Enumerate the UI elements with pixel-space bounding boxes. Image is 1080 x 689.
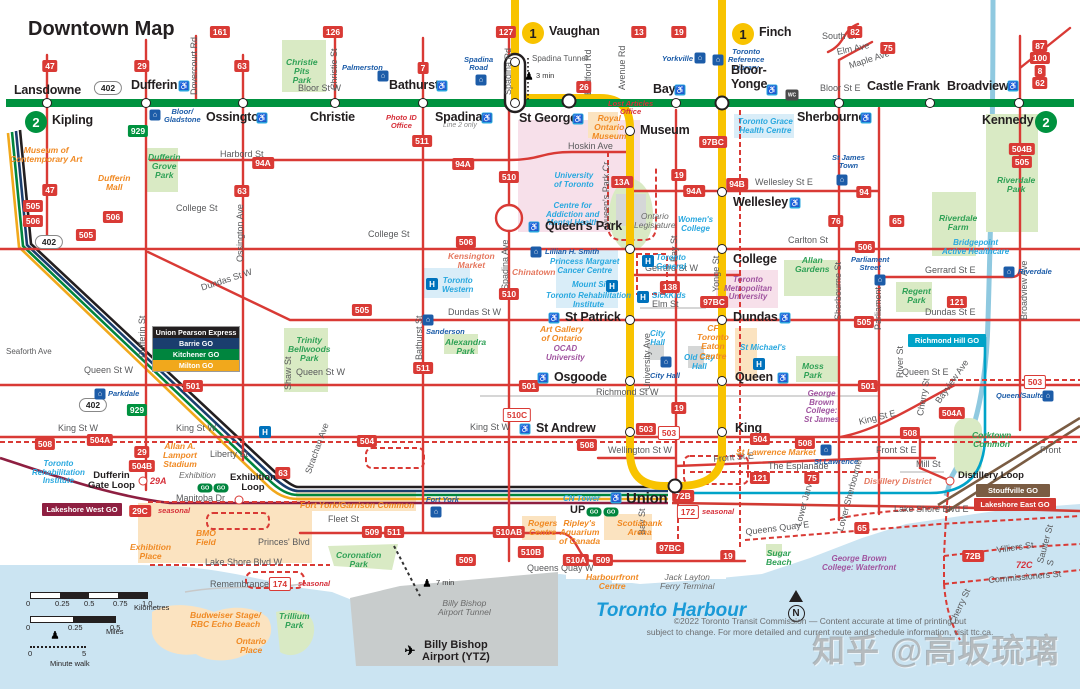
station-label-sherbourne: Sherbourne xyxy=(797,111,865,125)
station-dot-spadina xyxy=(510,98,520,108)
watermark: 知乎 @高坂琉璃 xyxy=(812,624,1059,672)
route-badge-505: 505 xyxy=(352,304,372,316)
loop-label-dufferin-gate-loop: Dufferin Gate Loop xyxy=(88,471,135,492)
route-badge-63: 63 xyxy=(234,185,249,197)
poi-label-budweiser-stage-rbc-echo-beach: Budweiser Stage/ RBC Echo Beach xyxy=(190,611,261,629)
redtxt-label-29a: 29A xyxy=(150,477,167,487)
line2-terminal-badge-kipling: 2 xyxy=(25,111,47,133)
street-label-liberty-st: Liberty St xyxy=(210,450,248,460)
street-label-mill-st: Mill St xyxy=(916,460,941,470)
station-dot-bathurst xyxy=(418,98,428,108)
lib-label-st-james-town: St James Town xyxy=(832,154,865,170)
station-label-bathurst: Bathurst xyxy=(389,79,439,93)
accessibility-icon: ♿ xyxy=(520,424,531,435)
marker-dot xyxy=(510,57,520,67)
station-label-st-andrew: St Andrew xyxy=(536,422,596,436)
person-icon: ♟ xyxy=(423,579,432,590)
hosp-label-toronto-rehabilitation-institute: Toronto Rehabilitation Institute xyxy=(546,292,631,309)
person-icon: ♟ xyxy=(51,631,60,642)
station-dot-st-george xyxy=(562,94,577,109)
go-banner-stouffville-go: Stouffville GO xyxy=(976,484,1050,497)
accessibility-icon: ♿ xyxy=(861,113,872,124)
route-badge-100: 100 xyxy=(1030,52,1050,64)
street-label-wellesley-st-e: Wellesley St E xyxy=(755,178,813,188)
street-label-king-st-w: King St W xyxy=(176,424,216,434)
street-label-dovercourt-rd: Dovercourt Rd xyxy=(190,37,200,95)
route-badge-126: 126 xyxy=(323,26,343,38)
station-label-museum: Museum xyxy=(640,124,690,138)
route-badge-7: 7 xyxy=(418,62,429,74)
route-badge-508: 508 xyxy=(795,437,815,449)
hosp-label-toronto-western: Toronto Western xyxy=(442,277,473,294)
street-label-fleet-st: Fleet St xyxy=(328,515,359,525)
street-label-college-st: College St xyxy=(368,230,410,240)
route-badge-503: 503 xyxy=(658,426,680,440)
route-badge-94a: 94A xyxy=(252,157,274,169)
route-badge-121: 121 xyxy=(750,472,770,484)
station-dot-dufferin xyxy=(141,98,151,108)
street-label-avenue-rd: Avenue Rd xyxy=(618,46,628,90)
street-label-yonge-st: Yonge St xyxy=(712,256,722,292)
hosp-icon: H xyxy=(637,291,649,303)
dist-label-distillery-district: Distillery District xyxy=(864,477,932,486)
route-badge-509: 509 xyxy=(456,554,476,566)
scale-tick-0-5: 0.5 xyxy=(84,600,94,608)
poi-label-fort-york-garrison-common: Fort York/Garrison Common xyxy=(300,501,414,510)
route-badge-510ab: 510AB xyxy=(493,526,525,538)
poi-label-bmo-field: BMO Field xyxy=(196,529,216,547)
route-badge-172: 172 xyxy=(677,505,699,519)
scale-tick-0-25: 0.25 xyxy=(55,600,70,608)
accessibility-icon: ♿ xyxy=(611,493,622,504)
route-badge-504b: 504B xyxy=(1009,143,1035,155)
terminal-label-kennedy: Kennedy xyxy=(982,114,1033,128)
line2-terminal-badge-kennedy: 2 xyxy=(1035,111,1057,133)
route-badge-19: 19 xyxy=(671,26,686,38)
street-label-queen-st-w: Queen St W xyxy=(296,368,345,378)
route-badge-508: 508 xyxy=(900,427,920,439)
bld-label-jack-layton-ferry-terminal: Jack Layton Ferry Terminal xyxy=(660,573,714,591)
lib-label-fort-york: Fort York xyxy=(426,496,459,504)
lib-label-lillian-h-smith: Lillian H. Smith xyxy=(545,248,599,256)
lib-icon: ⌂ xyxy=(837,175,848,186)
lib-icon: ⌂ xyxy=(476,75,487,86)
route-badge-13: 13 xyxy=(631,26,646,38)
route-badge-8: 8 xyxy=(1035,65,1046,77)
poi-label-art-gallery-of-ontario: Art Gallery of Ontario xyxy=(540,325,583,343)
scale-bar-walk xyxy=(30,646,86,648)
hosp-label-toronto-general: Toronto General xyxy=(656,254,686,271)
lib-label-parliament-street: Parliament Street xyxy=(851,256,889,272)
route-badge-94b: 94B xyxy=(726,178,748,190)
park-label-trinity-bellwoods-park: Trinity Bellwoods Park xyxy=(288,336,331,364)
route-badge-504: 504 xyxy=(357,435,377,447)
route-badge-508: 508 xyxy=(577,439,597,451)
route-badge-504a: 504A xyxy=(87,434,113,446)
terminal-label-vaughan: Vaughan xyxy=(549,25,600,39)
station-label-broadview: Broadview xyxy=(947,80,1008,94)
street-label-wellington-st-w: Wellington St W xyxy=(608,446,672,456)
street-label-queen-st-w: Queen St W xyxy=(84,366,133,376)
route-badge-506: 506 xyxy=(855,241,875,253)
street-label-queen-st-e: Queen St E xyxy=(902,368,949,378)
route-badge-87: 87 xyxy=(1032,40,1047,52)
person-icon: ♟ xyxy=(525,72,534,83)
park-label-sugar-beach: Sugar Beach xyxy=(766,549,792,567)
scale-bar-km xyxy=(30,592,148,599)
hosp-icon: H xyxy=(606,280,618,292)
poi-label-harbourfront-centre: Harbourfront Centre xyxy=(586,573,638,591)
legend-item-union-pearson-express: Union Pearson Express xyxy=(153,327,239,338)
route-badge-19: 19 xyxy=(671,402,686,414)
lib-icon: ⌂ xyxy=(821,445,832,456)
route-badge-503: 503 xyxy=(636,423,656,435)
station-label-dufferin: Dufferin xyxy=(131,79,177,93)
lib-label-st-lawrence: St Lawrence xyxy=(814,458,858,466)
route-badge-19: 19 xyxy=(720,550,735,562)
station-label-queen: Queen xyxy=(735,371,773,385)
street-label-dufferin-st: Dufferin St xyxy=(138,316,148,358)
hosp-label-university-of-toronto: University of Toronto xyxy=(554,172,594,189)
route-badge-504: 504 xyxy=(750,433,770,445)
route-badge-94a: 94A xyxy=(452,158,474,170)
station-label-st-george: St George xyxy=(519,112,577,126)
street-label-king-st-w: King St W xyxy=(470,423,510,433)
street-label-sherbourne-st: Sherbourne St xyxy=(834,262,844,320)
accessibility-icon: ♿ xyxy=(778,373,789,384)
route-badge-505: 505 xyxy=(1012,156,1032,168)
route-badge-506: 506 xyxy=(23,215,43,227)
street-label-dundas-st-e: Dundas St E xyxy=(925,308,976,318)
route-badge-506: 506 xyxy=(103,211,123,223)
route-badge-75: 75 xyxy=(880,42,895,54)
station-label-spadina: Spadina xyxy=(435,111,482,125)
route-badge-127: 127 xyxy=(496,26,516,38)
route-badge-505: 505 xyxy=(23,200,43,212)
marker-dot xyxy=(235,496,244,505)
station-dot-dundas xyxy=(717,315,727,325)
street-label-elm-st: Elm St xyxy=(652,300,679,310)
scale-tick-5: 5 xyxy=(82,650,86,658)
route-badge-161: 161 xyxy=(210,26,230,38)
station-label-union: Union xyxy=(626,491,668,507)
route-badge-929: 929 xyxy=(128,125,148,137)
north-arrow-icon xyxy=(789,590,803,602)
lib-icon: ⌂ xyxy=(531,247,542,258)
route-badge-47: 47 xyxy=(42,60,57,72)
station-label-castle-frank: Castle Frank xyxy=(867,80,940,94)
park-label-corktown-common: Corktown Common xyxy=(972,431,1011,449)
route-badge-402: 402 xyxy=(94,81,122,95)
accessibility-icon: ♿ xyxy=(549,313,560,324)
lib-icon: ⌂ xyxy=(875,275,886,286)
route-badge-506: 506 xyxy=(456,236,476,248)
route-badge-76: 76 xyxy=(828,215,843,227)
lib-label-riverdale: Riverdale xyxy=(1018,268,1052,276)
pur-label-george-brown-college-waterfront: George Brown College: Waterfront xyxy=(822,555,896,572)
hosp-label-women-s-college: Women's College xyxy=(678,216,713,233)
station-label-college: College xyxy=(733,253,777,267)
lib-label-sanderson: Sanderson xyxy=(426,328,465,336)
route-badge-75: 75 xyxy=(804,472,819,484)
route-badge-510: 510 xyxy=(499,171,519,183)
station-label-wellesley: Wellesley xyxy=(733,196,788,210)
loop-label-exhibition-loop: Exhibition Loop xyxy=(230,473,276,494)
scale-unit-minute-walk: Minute walk xyxy=(50,660,90,668)
station-dot-lansdowne xyxy=(42,98,52,108)
station-dot-college xyxy=(717,244,727,254)
hosp-label-princess-margaret-cancer-centre: Princess Margaret Cancer Centre xyxy=(550,258,619,275)
station-label-lansdowne: Lansdowne xyxy=(14,84,81,98)
route-badge-19: 19 xyxy=(671,169,686,181)
park-label-alexandra-park: Alexandra Park xyxy=(445,338,486,356)
route-badge-174: 174 xyxy=(269,577,291,591)
lib-icon: ⌂ xyxy=(1004,267,1015,278)
park-label-trillium-park: Trillium Park xyxy=(279,612,310,630)
route-badge-121: 121 xyxy=(947,296,967,308)
street-label-carlton-st: Carlton St xyxy=(788,236,828,246)
route-badge-504a: 504A xyxy=(939,407,965,419)
park-label-dufferin-grove-park: Dufferin Grove Park xyxy=(148,153,180,181)
lib-icon: ⌂ xyxy=(431,507,442,518)
bld-label-billy-bishop-airport-tunnel: Billy Bishop Airport Tunnel xyxy=(438,599,491,617)
lib-label-bloor-gladstone: Bloor/ Gladstone xyxy=(164,108,201,124)
street-label-front: Front xyxy=(1040,446,1061,456)
station-label-osgoode: Osgoode xyxy=(554,371,607,385)
redtxt-label-seasonal: seasonal xyxy=(158,507,190,515)
smallgray-label-3-min: 3 min xyxy=(536,72,554,80)
scale-unit-kilometres: Kilometres xyxy=(134,604,169,612)
park-label-regent-park: Regent Park xyxy=(902,287,931,305)
poi-label-st-lawrence-market: St Lawrence Market xyxy=(736,448,816,457)
accessibility-icon: ♿ xyxy=(538,373,549,384)
park-label-moss-park: Moss Park xyxy=(802,362,824,380)
station-dot-st-andrew xyxy=(625,427,635,437)
station-dot-broadview xyxy=(1014,98,1024,108)
route-badge-97bc: 97BC xyxy=(700,296,728,308)
route-badge-65: 65 xyxy=(854,522,869,534)
station-dot-wellesley xyxy=(717,187,727,197)
loop-label-billy-bishop-airport-ytz: Billy Bishop Airport (YTZ) xyxy=(422,640,490,664)
route-badge-29: 29 xyxy=(134,446,149,458)
route-badge-508: 508 xyxy=(35,438,55,450)
station-label-bay: Bay xyxy=(653,83,675,97)
scale-tick-0-25: 0.25 xyxy=(68,624,83,632)
legend-item-milton-go: Milton GO xyxy=(153,360,239,371)
street-label-spadina-rd: Spadina Rd xyxy=(504,48,514,95)
route-badge-510: 510 xyxy=(499,288,519,300)
street-label-manitoba-dr: Manitoba Dr xyxy=(176,494,225,504)
street-label-gerrard-st-e: Gerrard St E xyxy=(925,266,976,276)
poi-label-scotiabank-arena: Scotiabank Arena xyxy=(617,519,662,537)
station-dot-king xyxy=(717,427,727,437)
station-label-christie: Christie xyxy=(310,111,355,125)
marker-dot xyxy=(946,477,955,486)
station-dot-ossington xyxy=(238,98,248,108)
bld-label-exhibition: Exhibition xyxy=(179,471,216,480)
lib-label-spadina-road: Spadina Road xyxy=(464,56,493,72)
station-label-queen-s-park: Queen's Park xyxy=(545,220,622,234)
poi-label-museum-of-contemporary-art: Museum of Contemporary Art xyxy=(10,146,82,164)
station-dot-castle-frank xyxy=(925,98,935,108)
street-label-hoskin-ave: Hoskin Ave xyxy=(568,142,613,152)
route-badge-504b: 504B xyxy=(129,460,155,472)
station-dot-sherbourne xyxy=(834,98,844,108)
route-badge-82: 82 xyxy=(847,26,862,38)
lib-label-parkdale: Parkdale xyxy=(108,390,139,398)
poi-label-allan-a-lamport-stadium: Allan A. Lamport Stadium xyxy=(163,442,197,470)
street-label-dundas-st-w: Dundas St W xyxy=(448,308,501,318)
route-badge-63: 63 xyxy=(275,467,290,479)
route-badge-29c: 29C xyxy=(129,505,151,517)
scale-tick-0: 0 xyxy=(26,600,30,608)
poi-label-ripley-s-aquarium-of-canada: Ripley's Aquarium of Canada xyxy=(559,519,600,547)
station-label-dundas: Dundas xyxy=(733,311,778,325)
route-badge-65: 65 xyxy=(889,215,904,227)
go-icon: GO xyxy=(587,508,602,517)
route-badge-26: 26 xyxy=(576,81,591,93)
hosp-label-cn-tower: CN Tower xyxy=(563,495,600,504)
street-label-ossington-ave: Ossington Ave xyxy=(236,204,246,262)
go-icon: GO xyxy=(604,508,619,517)
street-label-river-st: River St xyxy=(896,346,906,378)
route-badge-63: 63 xyxy=(234,60,249,72)
hosp-label-toronto-rehabilitation-institute: Toronto Rehabilitation Institute xyxy=(32,460,85,486)
park-label-christie-pits-park: Christie Pits Park xyxy=(286,58,318,86)
route-badge-13a: 13A xyxy=(611,176,633,188)
lib-icon: ⌂ xyxy=(1043,391,1054,402)
lib-icon: ⌂ xyxy=(661,357,672,368)
street-label-lake-shore-blvd-w: Lake Shore Blvd W xyxy=(205,558,282,568)
route-badge-29: 29 xyxy=(134,60,149,72)
scale-tick-0-75: 0.75 xyxy=(113,600,128,608)
lib-icon: ⌂ xyxy=(95,389,106,400)
route-badge-501: 501 xyxy=(183,380,203,392)
street-label-princes-blvd: Princes' Blvd xyxy=(258,538,310,548)
street-label-lake-shore-blvd-e: Lake Shore Blvd E xyxy=(894,505,969,515)
accessibility-icon: ♿ xyxy=(1008,81,1019,92)
route-badge-509: 509 xyxy=(362,526,382,538)
route-badge-509: 509 xyxy=(593,554,613,566)
route-badge-511: 511 xyxy=(412,135,432,147)
poi-label-cf-toronto-eaton-centre: CF Toronto Eaton Centre xyxy=(697,324,729,361)
station-dot-union xyxy=(668,479,683,494)
go-icon: GO xyxy=(214,484,229,493)
poi-label-exhibition-place: Exhibition Place xyxy=(130,543,171,561)
poi-label-royal-ontario-museum: Royal Ontario Museum xyxy=(592,114,626,142)
route-badge-505: 505 xyxy=(854,316,874,328)
route-badge-94a: 94A xyxy=(683,185,705,197)
scale-unit-miles: Miles xyxy=(106,628,124,636)
poi-label-dufferin-mall: Dufferin Mall xyxy=(98,174,130,192)
smallgray-label-7-min: 7 min xyxy=(436,579,454,587)
route-badge-510c: 510C xyxy=(503,408,531,422)
hosp-label-st-michael-s: St Michael's xyxy=(740,344,786,353)
terminal-label-finch: Finch xyxy=(759,26,791,40)
poi-label-rogers-centre: Rogers Centre xyxy=(528,519,557,537)
accessibility-icon: ♿ xyxy=(790,198,801,209)
street-label-bloor-st-e: Bloor St E xyxy=(820,84,861,94)
route-badge-510a: 510A xyxy=(563,554,589,566)
scale-tick-0: 0 xyxy=(26,624,30,632)
accessibility-icon: ♿ xyxy=(780,313,791,324)
redtxt-label-photo-id-office: Photo ID Office xyxy=(386,114,417,130)
go-banner-lakeshore-west-go: Lakeshore West GO xyxy=(42,503,122,516)
route-badge-62: 62 xyxy=(1032,77,1047,89)
hosp-icon: H xyxy=(753,358,765,370)
route-badge-503: 503 xyxy=(1024,375,1046,389)
street-label-college-st: College St xyxy=(176,204,218,214)
street-label-spadina-ave: Spadina Ave xyxy=(501,240,511,290)
pur-label-ocad-university: OCAD University xyxy=(546,345,585,362)
route-badge-929: 929 xyxy=(127,404,147,416)
route-badge-501: 501 xyxy=(858,380,878,392)
route-badge-505: 505 xyxy=(76,229,96,241)
redtxt-label-lost-articles-office: Lost Articles Office xyxy=(608,100,653,116)
hosp-label-city-hall: City Hall xyxy=(650,330,665,347)
station-dot-bloor-yonge xyxy=(715,96,730,111)
station-label-bloor-yonge: Bloor- Yonge xyxy=(731,64,767,91)
page-title: Downtown Map xyxy=(28,18,175,41)
route-badge-510b: 510B xyxy=(518,546,544,558)
poi-label-ontario-place: Ontario Place xyxy=(236,637,266,655)
route-badge-94: 94 xyxy=(856,186,871,198)
pur-label-george-brown-college-st-james: George Brown College: St James xyxy=(804,390,839,425)
terminal-label-kipling: Kipling xyxy=(52,114,93,128)
loop-label-up: UP xyxy=(570,505,585,517)
lib-icon: ⌂ xyxy=(378,71,389,82)
pur-label-toronto-metropolitan-university: Toronto Metropolitan University xyxy=(724,276,772,302)
station-label-st-patrick: St Patrick xyxy=(565,311,621,325)
redtxt-label-seasonal: seasonal xyxy=(702,508,734,516)
route-badge-138: 138 xyxy=(660,281,680,293)
street-label-christie-st: Christie St xyxy=(330,48,340,90)
lib-icon: ⌂ xyxy=(695,53,706,64)
scale-tick-0: 0 xyxy=(28,650,32,658)
go-banner-lakeshore-east-go: Lakeshore East GO xyxy=(974,498,1056,511)
marker-dot xyxy=(139,477,148,486)
hosp-icon: H xyxy=(642,255,654,267)
line1-terminal-badge-vaughan: 1 xyxy=(522,22,544,44)
route-badge-97bc: 97BC xyxy=(656,542,684,554)
route-badge-402: 402 xyxy=(35,235,63,249)
street-label-seaforth-ave: Seaforth Ave xyxy=(6,348,52,357)
lib-icon: ⌂ xyxy=(713,55,724,66)
park-label-riverdale-farm: Riverdale Farm xyxy=(939,214,977,232)
station-dot-queen-s-park xyxy=(625,244,635,254)
line1-terminal-badge-finch: 1 xyxy=(732,23,754,45)
hosp-icon: H xyxy=(426,278,438,290)
lib-label-yorkville: Yorkville xyxy=(662,55,693,63)
bld-label-ontario-legislature: Ontario Legislature xyxy=(634,212,676,230)
accessibility-icon: ♿ xyxy=(437,81,448,92)
go-legend: Union Pearson ExpressBarrie GOKitchener … xyxy=(152,326,240,372)
route-badge-47: 47 xyxy=(42,184,57,196)
route-badge-72b: 72B xyxy=(962,550,984,562)
lib-label-city-hall: City Hall xyxy=(650,372,680,380)
station-dot-museum xyxy=(625,126,635,136)
loop-label-distillery-loop: Distillery Loop xyxy=(958,471,1024,481)
legend-item-kitchener-go: Kitchener GO xyxy=(153,349,239,360)
station-dot-osgoode xyxy=(625,376,635,386)
scale-bar-miles xyxy=(30,616,116,623)
accessibility-icon: ♿ xyxy=(573,114,584,125)
route-badge-402: 402 xyxy=(79,398,107,412)
station-dot-queen xyxy=(717,376,727,386)
park-label-coronation-park: Coronation Park xyxy=(336,551,381,569)
station-dot-bay xyxy=(671,98,681,108)
station-dot-christie xyxy=(330,98,340,108)
